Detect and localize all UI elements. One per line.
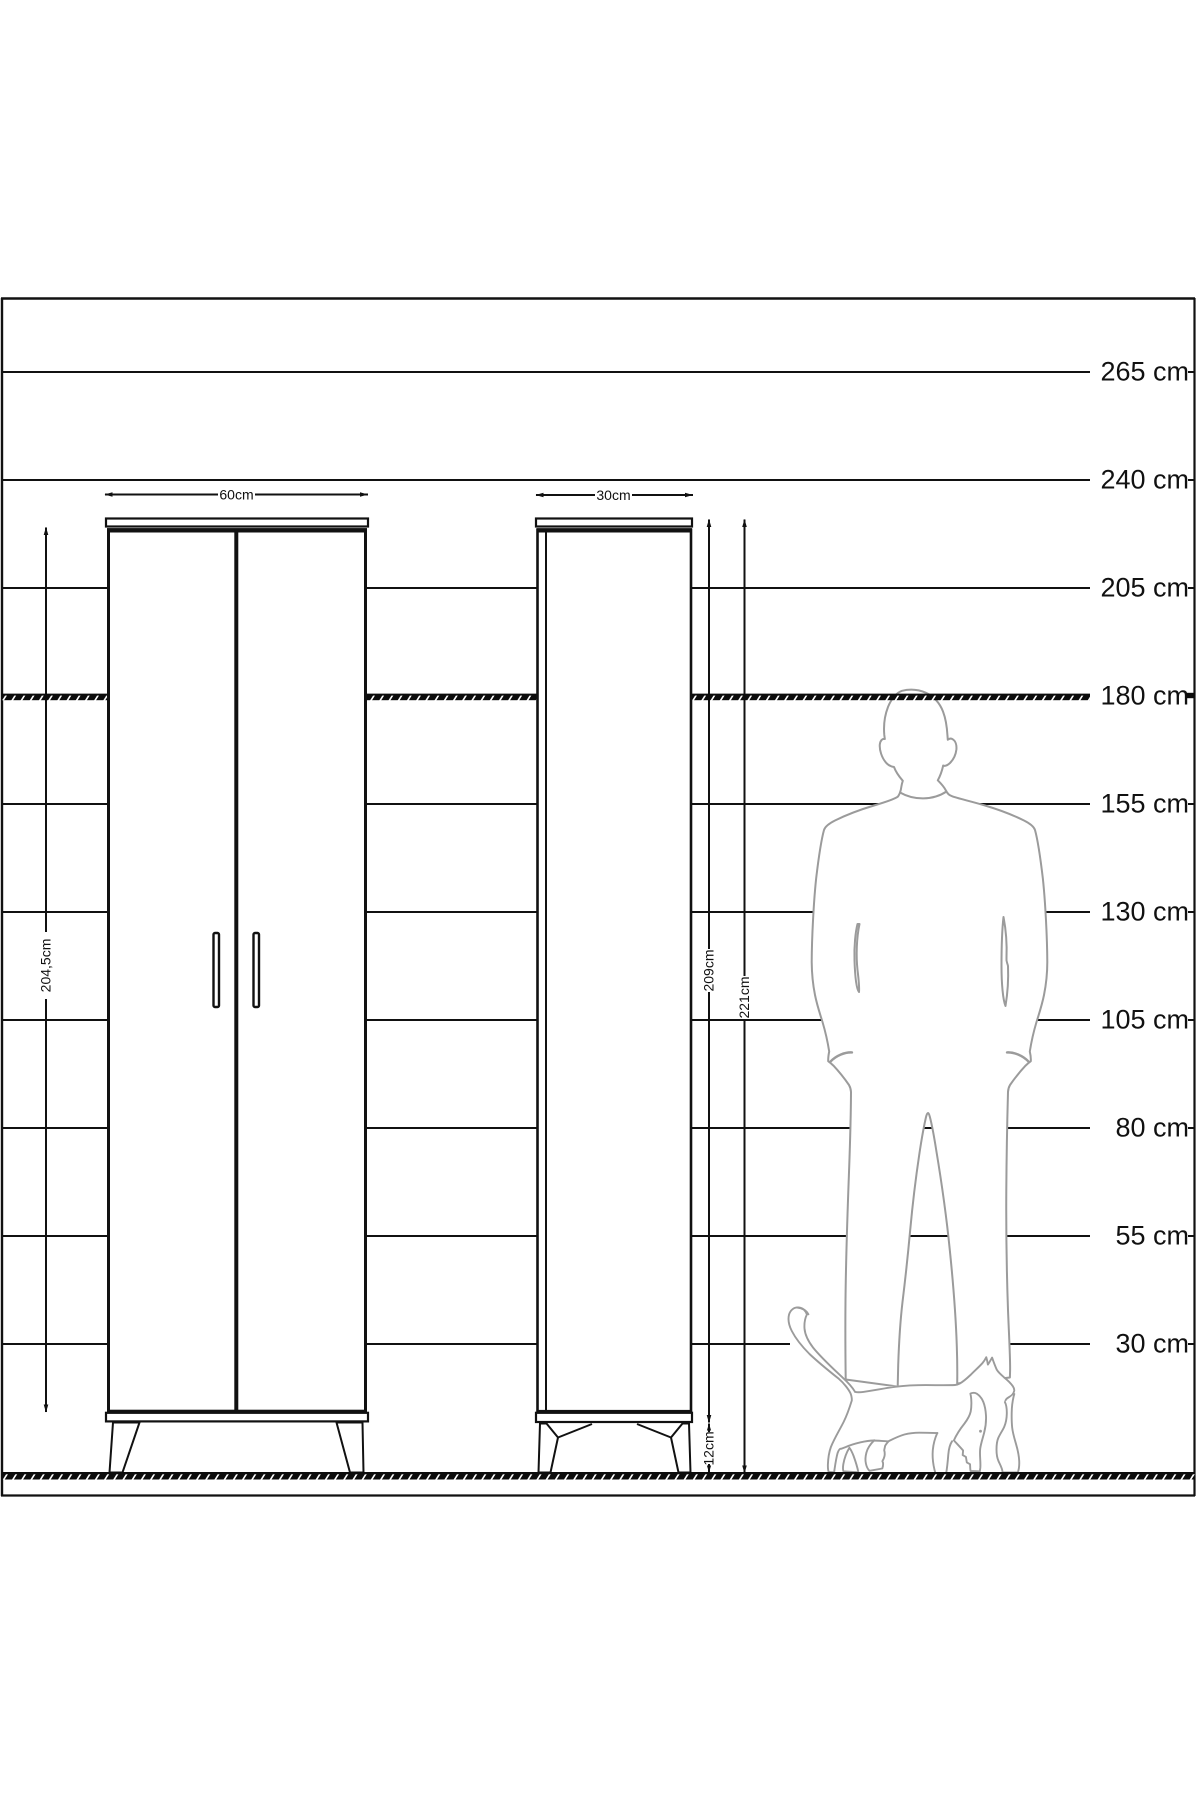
svg-text:265 cm: 265 cm bbox=[1100, 357, 1189, 387]
svg-text:55 cm: 55 cm bbox=[1115, 1221, 1189, 1251]
svg-text:30cm: 30cm bbox=[596, 487, 630, 503]
svg-text:204,5cm: 204,5cm bbox=[38, 939, 54, 993]
svg-text:130 cm: 130 cm bbox=[1100, 897, 1189, 927]
svg-text:60cm: 60cm bbox=[219, 487, 253, 503]
svg-text:105 cm: 105 cm bbox=[1100, 1005, 1189, 1035]
svg-text:12cm: 12cm bbox=[701, 1431, 717, 1465]
svg-text:221cm: 221cm bbox=[736, 976, 752, 1018]
svg-text:180 cm: 180 cm bbox=[1100, 681, 1189, 711]
svg-text:155 cm: 155 cm bbox=[1100, 789, 1189, 819]
svg-text:205 cm: 205 cm bbox=[1100, 573, 1189, 603]
svg-text:30 cm: 30 cm bbox=[1115, 1329, 1189, 1359]
svg-text:80 cm: 80 cm bbox=[1115, 1113, 1189, 1143]
svg-text:240 cm: 240 cm bbox=[1100, 465, 1189, 495]
svg-text:209cm: 209cm bbox=[701, 949, 717, 991]
